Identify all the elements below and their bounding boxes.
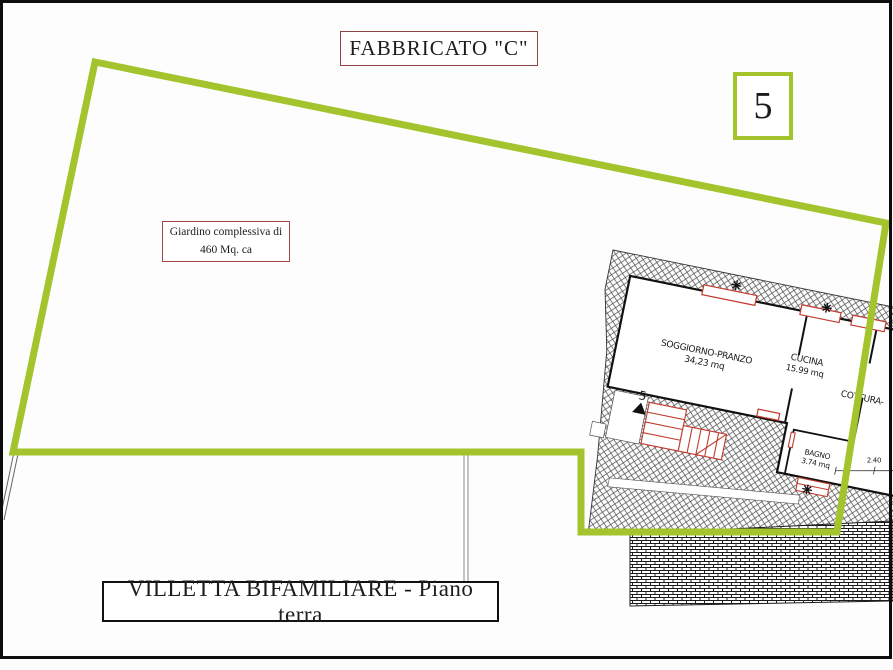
garden-label-line1: Giardino complessiva di bbox=[170, 224, 282, 242]
building-title-box: FABBRICATO "C" bbox=[340, 31, 538, 66]
gate-post bbox=[590, 421, 607, 438]
unit-number-badge: 5 bbox=[733, 72, 793, 140]
building-title: FABBRICATO "C" bbox=[349, 36, 528, 61]
survey-line-corner bbox=[1, 452, 18, 520]
garden-area-label: Giardino complessiva di 460 Mq. ca bbox=[162, 221, 290, 262]
garden-label-line2: 460 Mq. ca bbox=[200, 242, 252, 260]
unit-number: 5 bbox=[754, 84, 773, 128]
drawing-title: VILLETTA BIFAMILIARE - Piano terra bbox=[104, 576, 497, 628]
survey-line-vertical bbox=[464, 453, 468, 583]
drawing-title-box: VILLETTA BIFAMILIARE - Piano terra bbox=[102, 581, 499, 622]
site-plan-drawing: 5 2.40 SOGGIORNO-PRANZO 34,23 mq CUCINA … bbox=[0, 0, 893, 670]
dimension-label: 2.40 bbox=[867, 456, 881, 464]
